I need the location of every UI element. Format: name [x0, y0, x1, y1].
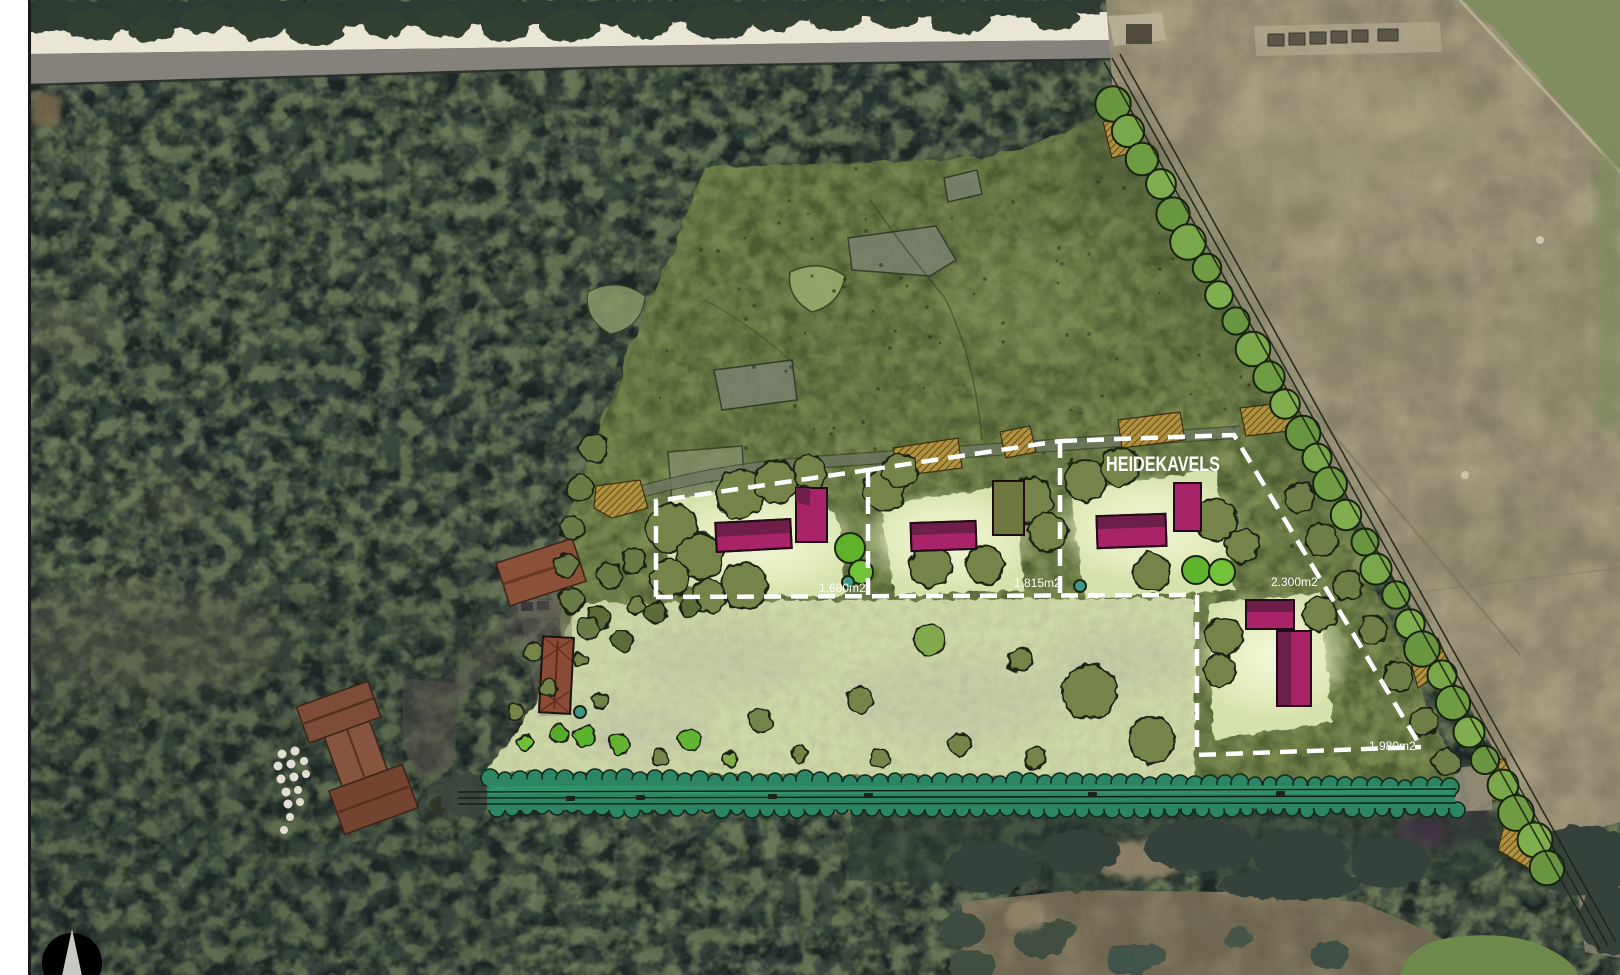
- svg-text:1.980m2: 1.980m2: [1369, 739, 1416, 753]
- svg-text:1.815m2: 1.815m2: [1014, 576, 1061, 590]
- svg-text:2.300m2: 2.300m2: [1271, 575, 1318, 589]
- svg-text:HEIDEKAVELS: HEIDEKAVELS: [1106, 453, 1220, 476]
- svg-text:1.680m2: 1.680m2: [819, 581, 866, 595]
